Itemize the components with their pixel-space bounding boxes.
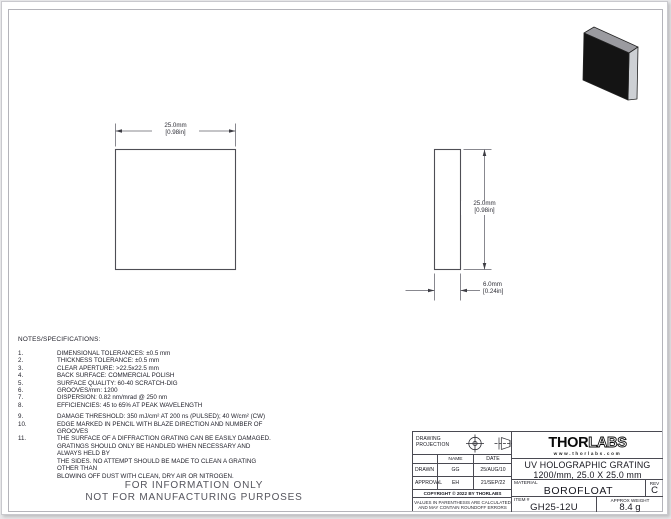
watermark-line1: FOR INFORMATION ONLY — [72, 480, 316, 492]
approval-row: APPROVAL EH 21/SEP/22 — [413, 477, 512, 490]
note-item: 11.THE SURFACE OF A DIFFRACTION GRATING … — [18, 435, 275, 479]
projection-target-icon — [466, 435, 484, 453]
note-item: 5.SURFACE QUALITY: 60-40 SCRATCH-DIG — [18, 380, 275, 387]
note-number: 2. — [18, 357, 57, 364]
name-header: NAME — [437, 455, 473, 464]
note-text: EDGE MARKED IN PENCIL WITH BLAZE DIRECTI… — [57, 421, 275, 436]
weight-cell: APPROX WEIGHT 8.4 g — [596, 497, 663, 512]
note-text: DAMAGE THRESHOLD: 350 mJ/cm² AT 200 ns (… — [57, 413, 265, 420]
note-item: 10.EDGE MARKED IN PENCIL WITH BLAZE DIRE… — [18, 421, 275, 436]
drawn-name: GG — [437, 464, 473, 477]
logo-thor-text: THOR — [548, 435, 588, 451]
note-item: 3.CLEAR APERTURE: >22.5x22.5 mm — [18, 365, 275, 372]
drawn-label: DRAWN — [413, 464, 437, 477]
note-item: 9.DAMAGE THRESHOLD: 350 mJ/cm² AT 200 ns… — [18, 413, 275, 420]
signature-header-row: NAME DATE — [413, 455, 512, 464]
note-item: 7.DISPERSION: 0.82 nm/mrad @ 250 nm — [18, 394, 275, 401]
isometric-grating-view — [583, 27, 638, 100]
drawn-row: DRAWN GG 25/AUG/10 — [413, 464, 512, 477]
item-cell: ITEM # GH25-12U APPROX WEIGHT 8.4 g — [512, 497, 663, 512]
drawing-projection-cell: DRAWING PROJECTION — [413, 432, 512, 455]
material-cell: MATERIAL BOROFLOAT REV C — [512, 480, 663, 497]
front-width-in: [0.98in] — [152, 130, 199, 137]
note-item: 4.BACK SURFACE: COMMERCIAL POLISH — [18, 372, 275, 379]
note-number: 9. — [18, 413, 57, 420]
note-text: GROOVES/mm: 1200 — [57, 387, 118, 394]
slab-side-face — [628, 47, 638, 100]
front-width-label: 25.0mm [0.98in] — [152, 123, 199, 137]
note-number: 11. — [18, 435, 57, 479]
thorlabs-logo: THORLABS — [512, 436, 663, 450]
note-text: SURFACE QUALITY: 60-40 SCRATCH-DIG — [57, 380, 178, 387]
notes-heading: NOTES/SPECIFICATIONS: — [18, 336, 275, 343]
drawn-date: 25/AUG/10 — [473, 464, 512, 477]
roundoff-disclaimer: VALUES IN PARENTHESIS ARE CALCULATED AND… — [413, 498, 512, 512]
notes-section: NOTES/SPECIFICATIONS: 1.DIMENSIONAL TOLE… — [18, 336, 275, 480]
material-value: BOROFLOAT — [512, 485, 645, 497]
item-number-value: GH25-12U — [512, 502, 596, 513]
drawing-title-line2: 1200/mm, 25.0 X 25.0 mm — [512, 471, 663, 481]
side-height-in: [0.98in] — [461, 208, 508, 215]
title-block-right-panel: THORLABS www.thorlabs.com UV HOLOGRAPHIC… — [512, 432, 663, 512]
side-view — [435, 150, 461, 270]
information-only-watermark: FOR INFORMATION ONLY NOT FOR MANUFACTURI… — [72, 480, 316, 503]
revision-cell: REV C — [645, 480, 663, 497]
copyright-notice: COPYRIGHT © 2022 BY THORLABS — [413, 490, 512, 498]
side-thickness-dimension — [406, 274, 481, 301]
note-text: THICKNESS TOLERANCE: ±0.5 mm — [57, 357, 159, 364]
watermark-line2: NOT FOR MANUFACTURING PURPOSES — [72, 492, 316, 504]
notes-list: 1.DIMENSIONAL TOLERANCES: ±0.5 mm 2.THIC… — [18, 350, 275, 480]
side-thickness-in: [0.24in] — [483, 289, 525, 296]
note-text: BACK SURFACE: COMMERCIAL POLISH — [57, 372, 174, 379]
note-number: 7. — [18, 394, 57, 401]
note-number: 3. — [18, 365, 57, 372]
note-text: DIMENSIONAL TOLERANCES: ±0.5 mm — [57, 350, 170, 357]
note-number: 4. — [18, 372, 57, 379]
note-item: 2.THICKNESS TOLERANCE: ±0.5 mm — [18, 357, 275, 364]
note-number: 5. — [18, 380, 57, 387]
note-text: DISPERSION: 0.82 nm/mrad @ 250 nm — [57, 394, 167, 401]
note-item: 8.EFFICIENCIES: 45 to 65% AT PEAK WAVELE… — [18, 402, 275, 409]
front-view — [116, 150, 236, 270]
side-height-label: 25.0mm [0.98in] — [461, 201, 508, 215]
approval-label: APPROVAL — [413, 477, 437, 490]
thorlabs-logo-cell: THORLABS www.thorlabs.com — [512, 432, 663, 459]
date-header: DATE — [473, 455, 512, 464]
note-text: EFFICIENCIES: 45 to 65% AT PEAK WAVELENG… — [57, 402, 202, 409]
rev-value: C — [646, 486, 663, 495]
note-item: 6.GROOVES/mm: 1200 — [18, 387, 275, 394]
drawing-title-cell: UV HOLOGRAPHIC GRATING 1200/mm, 25.0 X 2… — [512, 459, 663, 480]
note-item: 1.DIMENSIONAL TOLERANCES: ±0.5 mm — [18, 350, 275, 357]
note-text: THE SURFACE OF A DIFFRACTION GRATING CAN… — [57, 435, 275, 479]
note-number: 10. — [18, 421, 57, 436]
note-number: 1. — [18, 350, 57, 357]
title-block-left-panel: DRAWING PROJECTION — [413, 432, 512, 512]
logo-labs-text: LABS — [588, 435, 626, 451]
note-text: CLEAR APERTURE: >22.5x22.5 mm — [57, 365, 159, 372]
approx-weight-value: 8.4 g — [597, 503, 663, 512]
side-thickness-arrows — [428, 289, 467, 293]
side-thickness-label: 6.0mm [0.24in] — [483, 282, 525, 296]
title-block: DRAWING PROJECTION — [412, 431, 662, 511]
approval-date: 21/SEP/22 — [473, 477, 512, 490]
drawing-sheet: 25.0mm [0.98in] 25.0mm [0.98in] 6.0mm [0… — [1, 1, 668, 515]
thorlabs-url: www.thorlabs.com — [512, 451, 663, 456]
projection-cone-icon — [495, 438, 513, 450]
note-number: 6. — [18, 387, 57, 394]
approval-name: EH — [437, 477, 473, 490]
note-number: 8. — [18, 402, 57, 409]
